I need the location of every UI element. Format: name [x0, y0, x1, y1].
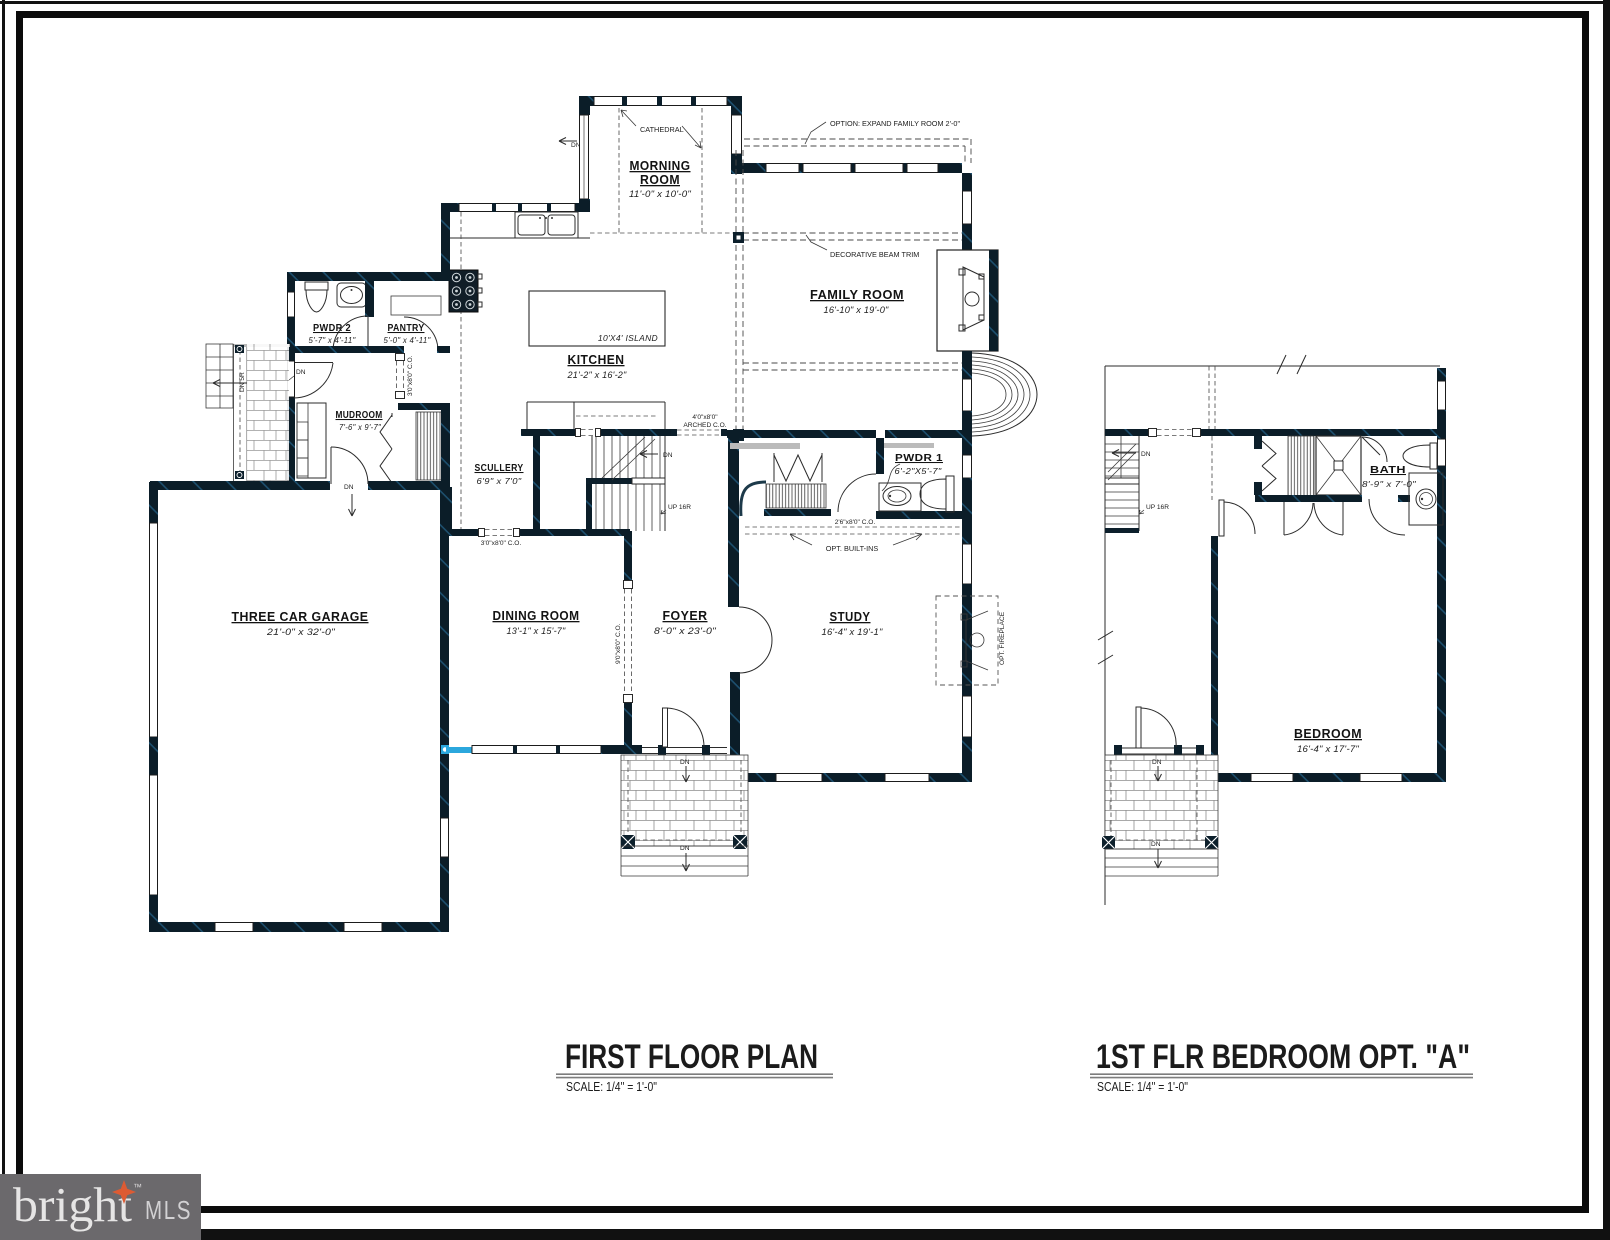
svg-text:11'-0" x 10'-0": 11'-0" x 10'-0"	[629, 189, 691, 200]
svg-text:16'-4" x 19'-1": 16'-4" x 19'-1"	[822, 627, 883, 638]
svg-text:3'0"x8'0" C.O.: 3'0"x8'0" C.O.	[407, 355, 414, 396]
svg-text:6'9" x 7'0": 6'9" x 7'0"	[477, 476, 523, 486]
svg-text:ROOM: ROOM	[640, 172, 680, 187]
svg-text:bright: bright	[13, 1177, 132, 1232]
svg-text:5'-0" x 4'-11": 5'-0" x 4'-11"	[384, 335, 432, 345]
svg-text:™: ™	[133, 1182, 142, 1192]
svg-text:THREE CAR GARAGE: THREE CAR GARAGE	[232, 609, 369, 624]
svg-text:DN: DN	[571, 142, 581, 149]
svg-text:1ST FLR BEDROOM OPT. "A": 1ST FLR BEDROOM OPT. "A"	[1096, 1038, 1470, 1076]
svg-text:SCULLERY: SCULLERY	[475, 462, 524, 474]
svg-text:UP 16R: UP 16R	[668, 504, 691, 511]
svg-text:MUDROOM: MUDROOM	[336, 409, 383, 421]
svg-text:10'X4' ISLAND: 10'X4' ISLAND	[598, 333, 658, 343]
svg-text:16'-10" x 19'-0": 16'-10" x 19'-0"	[824, 305, 889, 316]
svg-text:13'-1" x 15'-7": 13'-1" x 15'-7"	[507, 626, 566, 637]
svg-text:DN: DN	[296, 369, 306, 376]
svg-text:DN: DN	[663, 452, 673, 459]
svg-text:16'-4" x 17'-7": 16'-4" x 17'-7"	[1297, 744, 1359, 755]
svg-text:KITCHEN: KITCHEN	[568, 352, 625, 367]
svg-text:OPT. FIREPLACE: OPT. FIREPLACE	[999, 611, 1006, 665]
svg-text:DECORATIVE BEAM TRIM: DECORATIVE BEAM TRIM	[830, 250, 919, 259]
svg-text:4'0"x8'0": 4'0"x8'0"	[692, 414, 718, 421]
svg-text:9'0"x8'0" C.O.: 9'0"x8'0" C.O.	[615, 623, 622, 664]
svg-text:7'-6" x 9'-7": 7'-6" x 9'-7"	[339, 422, 382, 432]
svg-text:PWDR 1: PWDR 1	[895, 452, 943, 464]
svg-text:DN: DN	[344, 484, 354, 491]
svg-text:SCALE: 1/4" = 1'-0": SCALE: 1/4" = 1'-0"	[566, 1079, 657, 1094]
svg-text:DN 5R: DN 5R	[239, 372, 246, 392]
svg-text:FOYER: FOYER	[663, 608, 708, 623]
svg-text:OPT. BUILT-INS: OPT. BUILT-INS	[826, 544, 879, 553]
svg-text:MLS: MLS	[145, 1195, 192, 1225]
svg-text:DN: DN	[1152, 759, 1162, 766]
svg-text:BEDROOM: BEDROOM	[1294, 726, 1362, 741]
svg-text:STUDY: STUDY	[830, 609, 871, 624]
svg-text:SCALE: 1/4" = 1'-0": SCALE: 1/4" = 1'-0"	[1097, 1079, 1188, 1094]
svg-text:PANTRY: PANTRY	[388, 322, 425, 334]
svg-text:8'-0" x 23'-0": 8'-0" x 23'-0"	[654, 626, 716, 637]
svg-text:OPTION: EXPAND FAMILY ROOM 2'-: OPTION: EXPAND FAMILY ROOM 2'-0"	[830, 119, 960, 128]
svg-text:DN: DN	[680, 845, 690, 852]
svg-text:DN: DN	[1151, 841, 1161, 848]
svg-text:FIRST FLOOR PLAN: FIRST FLOOR PLAN	[565, 1038, 818, 1076]
svg-text:6'-2"X5'-7": 6'-2"X5'-7"	[895, 466, 943, 476]
svg-text:PWDR 2: PWDR 2	[313, 322, 351, 334]
svg-text:3'0"x8'0" C.O.: 3'0"x8'0" C.O.	[481, 540, 522, 547]
svg-text:DINING ROOM: DINING ROOM	[493, 608, 580, 623]
svg-text:5'-7" x 4'-11": 5'-7" x 4'-11"	[309, 335, 357, 345]
svg-text:FAMILY ROOM: FAMILY ROOM	[810, 287, 904, 302]
svg-text:21'-2" x 16'-2": 21'-2" x 16'-2"	[567, 370, 627, 381]
svg-text:UP 16R: UP 16R	[1146, 504, 1169, 511]
svg-text:CATHEDRAL: CATHEDRAL	[640, 125, 684, 134]
svg-text:BATH: BATH	[1370, 464, 1406, 476]
svg-text:MORNING: MORNING	[630, 158, 691, 173]
svg-text:2'6"x8'0" C.O.: 2'6"x8'0" C.O.	[835, 519, 876, 526]
svg-text:ARCHED C.O.: ARCHED C.O.	[683, 422, 726, 429]
svg-text:DN: DN	[680, 759, 690, 766]
svg-text:21'-0" x 32'-0": 21'-0" x 32'-0"	[266, 627, 336, 638]
svg-text:DN: DN	[1141, 451, 1151, 458]
